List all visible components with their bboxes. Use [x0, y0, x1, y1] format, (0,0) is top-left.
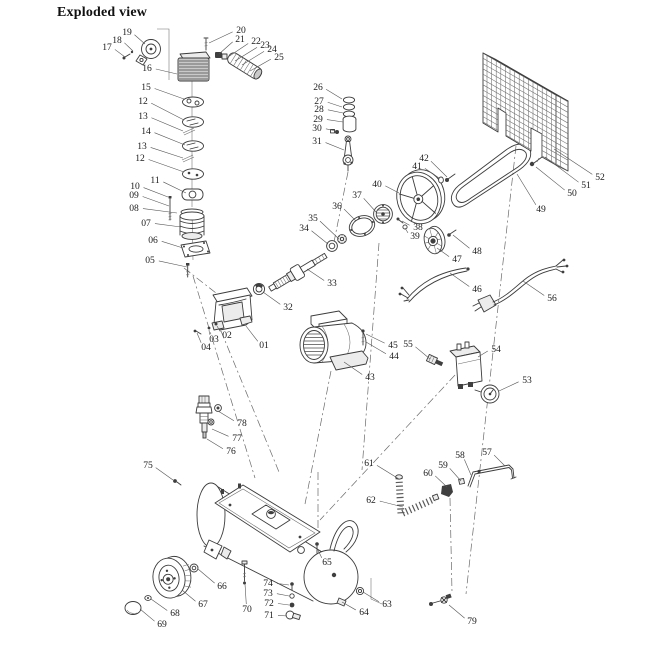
part-label-36: 36 — [332, 201, 342, 212]
leader-line-11 — [163, 182, 186, 193]
part-label-47: 47 — [452, 254, 462, 265]
leader-line-59 — [450, 468, 461, 481]
bolt-02 — [215, 323, 218, 326]
fan-pulley — [421, 224, 448, 255]
leader-line-27 — [328, 102, 342, 107]
intake-filter-housing — [123, 40, 161, 66]
part-label-12: 12 — [138, 96, 148, 107]
piston-and-rings — [331, 97, 356, 134]
part-label-30: 30 — [312, 123, 322, 134]
exploded-view-diagram: 1918171615121314131211100908070605010203… — [0, 0, 661, 661]
leader-line-05 — [159, 261, 187, 267]
leader-line-56 — [523, 281, 544, 295]
leader-line-26 — [326, 89, 342, 99]
crankshaft — [266, 250, 329, 295]
leader-line-18 — [124, 43, 133, 51]
tank-platform — [215, 485, 320, 552]
leader-line-29 — [327, 120, 343, 122]
leader-line-58 — [464, 459, 471, 475]
leader-line-67 — [182, 590, 196, 601]
part-label-19: 19 — [122, 27, 132, 38]
bearing-cover — [374, 205, 393, 224]
leader-line-31 — [326, 143, 344, 150]
leader-line-28 — [328, 110, 343, 113]
part-label-48: 48 — [472, 246, 482, 257]
part-label-14: 14 — [141, 126, 151, 137]
part-label-77: 77 — [232, 433, 242, 444]
part-label-78: 78 — [237, 418, 247, 429]
bolt-03 — [208, 327, 211, 330]
leader-line-24 — [242, 51, 264, 65]
part-label-68: 68 — [170, 608, 180, 619]
leader-line-70 — [245, 584, 246, 604]
pressure-switch — [450, 342, 482, 389]
leader-line-21 — [219, 42, 233, 54]
part-label-72: 72 — [264, 598, 274, 609]
leader-line-61 — [377, 465, 399, 479]
pipe-ferrule — [477, 470, 480, 473]
part-label-18: 18 — [112, 35, 122, 46]
part-label-04: 04 — [201, 342, 211, 353]
drain-cock — [429, 594, 452, 606]
leader-line-78 — [218, 411, 234, 421]
part-label-61: 61 — [364, 458, 374, 469]
flex-hose — [396, 475, 439, 514]
leader-line-74 — [277, 583, 289, 585]
part-label-42: 42 — [419, 153, 429, 164]
leader-line-50 — [536, 167, 565, 190]
leader-line-73 — [277, 594, 289, 596]
flywheel-washer-bolt — [439, 174, 455, 183]
crankcase — [194, 288, 252, 334]
flywheel — [391, 165, 451, 229]
part-label-05: 05 — [145, 255, 155, 266]
part-label-53: 53 — [522, 375, 532, 386]
part-label-79: 79 — [467, 616, 477, 627]
part-label-46: 46 — [472, 284, 482, 295]
leader-line-15 — [155, 89, 184, 99]
plug — [173, 479, 181, 485]
part-label-69: 69 — [157, 619, 167, 630]
part-label-02: 02 — [222, 330, 232, 341]
leader-line-12 — [151, 103, 184, 120]
part-label-57: 57 — [482, 447, 492, 458]
part-label-43: 43 — [365, 372, 375, 383]
part-label-50: 50 — [567, 188, 577, 199]
part-label-71: 71 — [264, 610, 274, 621]
drive-belt — [451, 144, 530, 207]
part-label-49: 49 — [536, 204, 546, 215]
leader-line-37 — [364, 198, 376, 212]
part-label-67: 67 — [198, 599, 208, 610]
part-label-33: 33 — [327, 278, 337, 289]
leader-line-60 — [435, 476, 447, 487]
part-label-07: 07 — [141, 218, 151, 229]
part-label-64: 64 — [359, 607, 369, 618]
leader-line-77 — [212, 429, 229, 436]
leader-line-20 — [209, 32, 233, 43]
leader-line-32 — [263, 292, 280, 304]
leader-line-14 — [154, 133, 185, 145]
part-label-12: 12 — [135, 153, 145, 164]
leader-line-33 — [307, 269, 324, 281]
part-label-13: 13 — [138, 111, 148, 122]
leader-line-17 — [115, 49, 125, 57]
part-label-63: 63 — [382, 599, 392, 610]
leader-line-10 — [144, 188, 168, 197]
axle-nut — [190, 564, 198, 572]
cylinder-head — [178, 52, 210, 81]
part-label-09: 09 — [129, 190, 139, 201]
part-label-26: 26 — [313, 82, 323, 93]
part-label-66: 66 — [217, 581, 227, 592]
leader-line-57 — [494, 455, 505, 466]
wire-harness — [399, 267, 470, 302]
leader-line-13 — [151, 118, 183, 131]
belt-guard — [483, 48, 568, 176]
axle-bolt — [242, 561, 247, 585]
part-label-25: 25 — [274, 52, 284, 63]
tank-handle — [330, 521, 358, 552]
leader-line-69 — [140, 609, 155, 621]
leader-line-44 — [366, 342, 386, 354]
leader-line-53 — [499, 382, 519, 391]
leader-line-66 — [198, 569, 215, 583]
part-label-01: 01 — [259, 340, 269, 351]
elbow-fitting — [441, 484, 453, 497]
part-label-73: 73 — [263, 588, 273, 599]
part-label-51: 51 — [581, 180, 591, 191]
drain-fittings — [286, 582, 300, 619]
leader-line-49 — [517, 174, 536, 205]
part-label-11: 11 — [150, 175, 159, 186]
leader-line-01 — [246, 326, 258, 341]
part-label-58: 58 — [455, 450, 465, 461]
part-label-74: 74 — [263, 578, 273, 589]
leader-line-13 — [151, 147, 183, 158]
electric-motor — [300, 311, 368, 370]
base-gasket-plate — [181, 241, 210, 257]
tank-port — [298, 547, 305, 554]
leader-line-06 — [162, 241, 183, 248]
pipe-fitting — [426, 354, 443, 367]
leader-line-12 — [149, 160, 184, 172]
leader-line-07 — [155, 224, 181, 227]
part-label-37: 37 — [352, 190, 362, 201]
leader-line-08 — [143, 209, 177, 213]
head-stud-bolt — [169, 196, 172, 220]
motor-bolt — [361, 329, 364, 332]
leader-line-48 — [453, 235, 470, 248]
part-label-44: 44 — [389, 351, 399, 362]
pressure-gauge — [475, 385, 499, 403]
wheel — [150, 554, 194, 600]
part-label-15: 15 — [141, 82, 151, 93]
part-label-55: 55 — [403, 339, 413, 350]
part-label-45: 45 — [388, 340, 398, 351]
leader-line-45 — [366, 334, 385, 343]
part-label-17: 17 — [102, 42, 112, 53]
bearing — [327, 241, 338, 252]
part-label-40: 40 — [372, 179, 382, 190]
leader-line-68 — [151, 599, 167, 610]
leader-line-76 — [207, 439, 223, 449]
part-label-62: 62 — [366, 495, 376, 506]
leader-line-72 — [278, 603, 289, 605]
leader-line-75 — [156, 468, 173, 480]
leader-line-23 — [235, 47, 257, 61]
part-label-32: 32 — [283, 302, 293, 313]
check-valve — [356, 587, 363, 594]
leader-line-16 — [156, 69, 177, 74]
leader-line-79 — [449, 605, 465, 618]
part-label-31: 31 — [312, 136, 322, 147]
part-label-06: 06 — [148, 235, 158, 246]
leader-line-09 — [143, 196, 169, 206]
seal-ring — [253, 283, 264, 294]
leader-line-19 — [134, 35, 145, 44]
part-label-52: 52 — [595, 172, 605, 183]
guard-bolt — [530, 162, 534, 166]
part-label-08: 08 — [129, 203, 139, 214]
cylinder-flange-plate — [182, 189, 203, 200]
connecting-rod — [343, 136, 353, 171]
exploded-view-page: Exploded view — [0, 0, 661, 661]
leader-line-36 — [344, 209, 356, 221]
part-label-70: 70 — [242, 604, 252, 615]
part-label-54: 54 — [491, 344, 501, 355]
hub-cap — [125, 602, 141, 615]
leader-line-46 — [450, 273, 469, 286]
part-label-56: 56 — [547, 293, 557, 304]
hub-cap-inner — [145, 596, 151, 601]
part-label-60: 60 — [423, 468, 433, 479]
part-label-76: 76 — [226, 446, 236, 457]
part-label-75: 75 — [143, 460, 153, 471]
part-label-13: 13 — [137, 141, 147, 152]
part-label-21: 21 — [235, 34, 245, 45]
part-label-16: 16 — [142, 63, 152, 74]
fan-bolt — [447, 230, 456, 237]
part-label-39: 39 — [410, 231, 420, 242]
leader-line-55 — [415, 347, 430, 359]
leader-line-34 — [311, 231, 328, 244]
piston-pin — [335, 130, 339, 134]
part-label-59: 59 — [438, 460, 448, 471]
part-label-34: 34 — [299, 223, 309, 234]
part-label-65: 65 — [322, 557, 332, 568]
head-gasket-stack — [182, 97, 204, 179]
part-label-35: 35 — [308, 213, 318, 224]
